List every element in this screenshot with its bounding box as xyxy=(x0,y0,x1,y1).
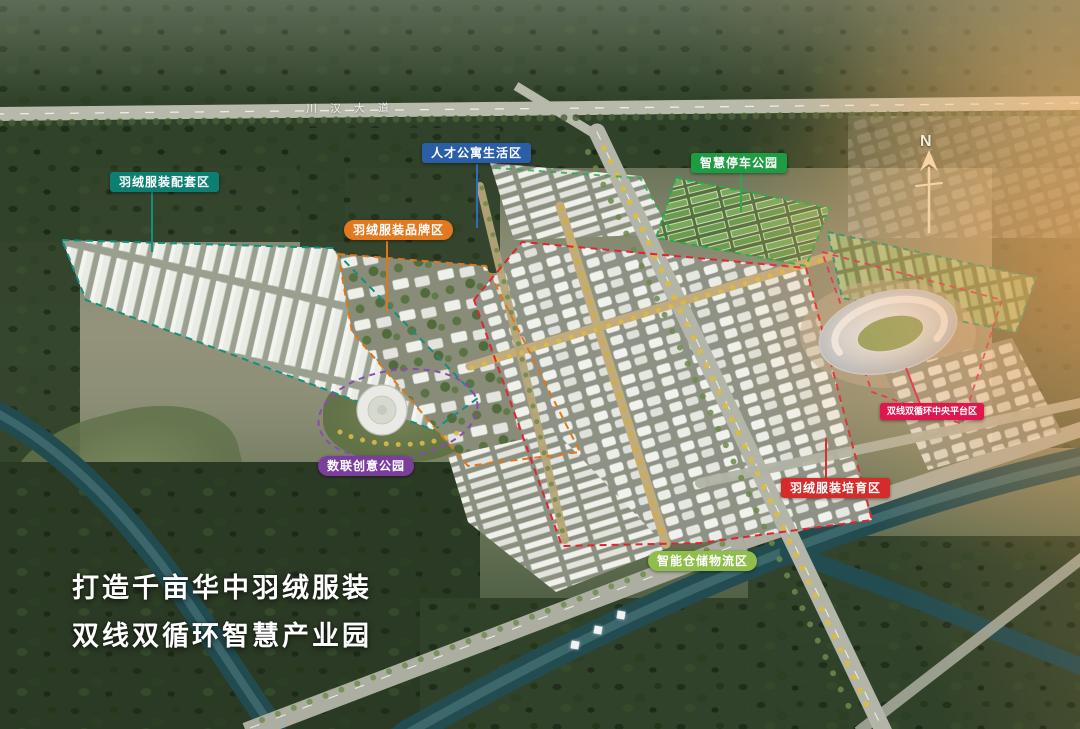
slogan-line-2: 双线双循环智慧产业园 xyxy=(72,612,372,660)
zone-label-logistics: 智能仓储物流区 xyxy=(648,551,757,571)
river-name-glyphs xyxy=(570,640,579,649)
creative-round-building xyxy=(357,385,407,435)
zone-label-smart-parking: 智慧停车公园 xyxy=(691,153,787,173)
river-name-glyphs xyxy=(616,610,625,619)
north-label: N xyxy=(920,133,932,151)
city-haze-blocks xyxy=(848,116,1080,238)
river-name-glyphs xyxy=(593,625,602,634)
zone-label-central-platform: 双线双循环中央平台区 xyxy=(880,403,984,420)
zone-label-brand: 羽绒服装品牌区 xyxy=(344,220,453,240)
zone-label-creative-park: 数联创意公园 xyxy=(318,456,414,476)
project-slogan: 打造千亩华中羽绒服装 双线双循环智慧产业园 xyxy=(72,564,372,660)
zone-label-talent-living: 人才公寓生活区 xyxy=(422,143,531,163)
zone-label-supporting: 羽绒服装配套区 xyxy=(110,172,219,192)
masterplan-rendering: 川汉大道 N 羽绒服装配套区 人才公寓生活区 智慧停车公园 羽绒服装品牌区 数联… xyxy=(0,0,1080,729)
zone-label-incubation: 羽绒服装培育区 xyxy=(781,478,890,498)
slogan-line-1: 打造千亩华中羽绒服装 xyxy=(72,564,372,612)
top-road-name: 川汉大道 xyxy=(306,100,402,117)
